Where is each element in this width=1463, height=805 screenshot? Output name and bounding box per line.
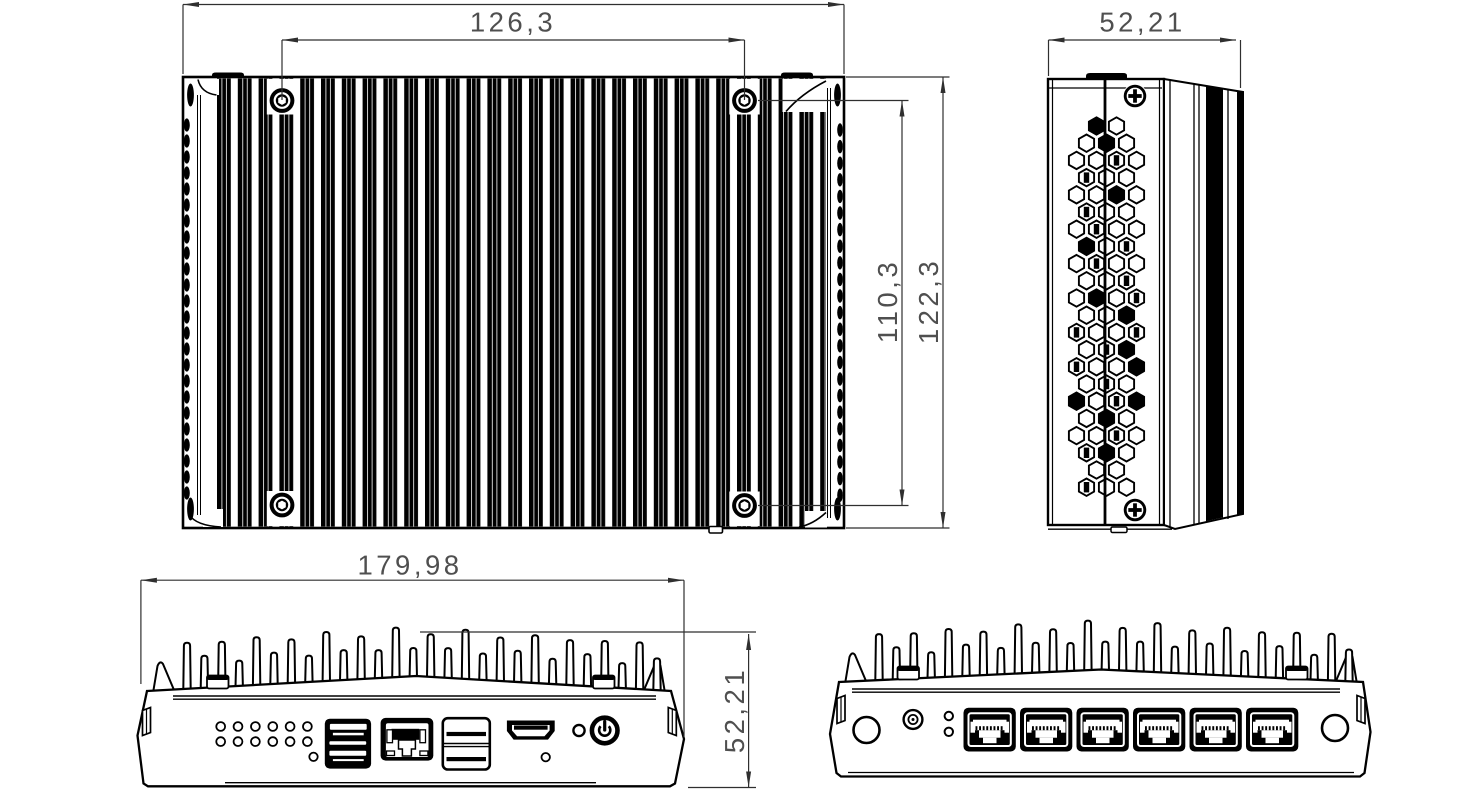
svg-text:126,3: 126,3 <box>470 7 556 38</box>
svg-text:179,98: 179,98 <box>357 550 462 581</box>
svg-text:110,3: 110,3 <box>872 259 903 343</box>
svg-text:52,21: 52,21 <box>1099 7 1185 38</box>
svg-text:122,3: 122,3 <box>913 258 944 344</box>
svg-text:52,21: 52,21 <box>719 667 750 753</box>
